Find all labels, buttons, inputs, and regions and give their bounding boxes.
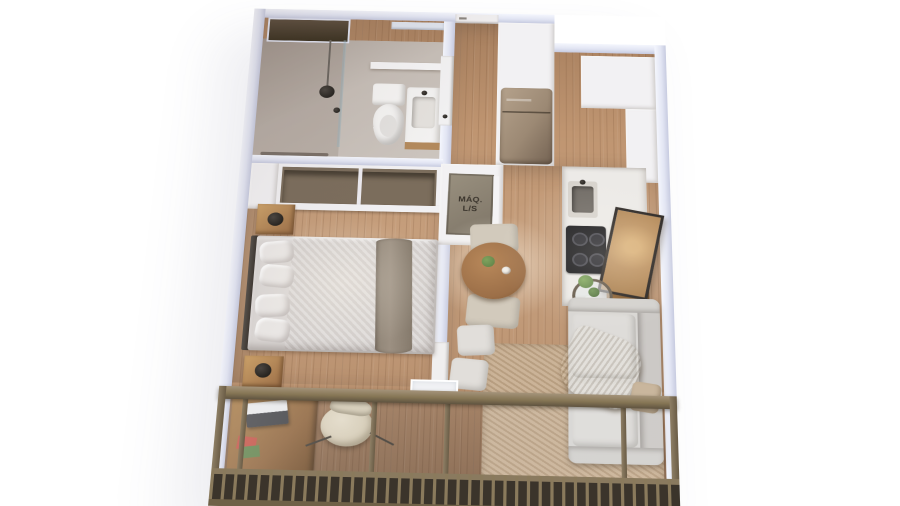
- pillow: [253, 317, 292, 344]
- pillow: [258, 263, 296, 289]
- burner: [589, 233, 605, 247]
- cup: [502, 266, 511, 274]
- kitchen-tall-cabinet: [581, 56, 656, 110]
- fridge-handle-icon: [506, 99, 531, 102]
- floorplan-render: MÁQ. L/S: [0, 0, 900, 506]
- scene-3d: MÁQ. L/S: [0, 0, 900, 506]
- pillow: [259, 240, 294, 265]
- toilet-tank: [372, 83, 406, 105]
- laundry-label-line2: L/S: [462, 204, 477, 213]
- dining-table: [461, 242, 526, 300]
- burner: [572, 232, 588, 246]
- plant-icon: [578, 275, 593, 288]
- duct-shaft: [266, 18, 350, 44]
- kitchen-faucet-icon: [580, 180, 586, 185]
- vanity-cabinet: [405, 142, 440, 150]
- bed-runner: [375, 238, 412, 353]
- entry-door-handle-icon: [459, 17, 467, 19]
- mirror: [391, 22, 444, 31]
- shower-area: [252, 38, 346, 164]
- wall-step-cut: [554, 15, 665, 46]
- apartment-plan: MÁQ. L/S: [207, 9, 681, 506]
- pillow: [255, 293, 290, 317]
- duvet-quilting: [284, 238, 436, 353]
- ottoman: [457, 324, 496, 356]
- burner: [572, 253, 588, 267]
- laundry-label-line1: MÁQ.: [458, 195, 483, 205]
- sofa-armrest: [568, 297, 660, 313]
- wardrobe-side-cabinet: [248, 163, 279, 209]
- sink-icon: [411, 97, 435, 129]
- door-handle-icon: [443, 114, 448, 118]
- sink-basin: [572, 186, 594, 213]
